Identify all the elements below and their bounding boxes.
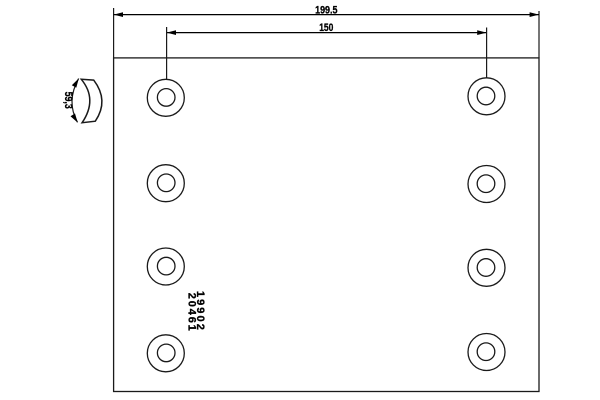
svg-text:59,3: 59,3 [62,92,74,109]
svg-text:150: 150 [319,22,333,34]
svg-text:199.5: 199.5 [315,5,337,17]
svg-text:20461: 20461 [186,293,198,331]
